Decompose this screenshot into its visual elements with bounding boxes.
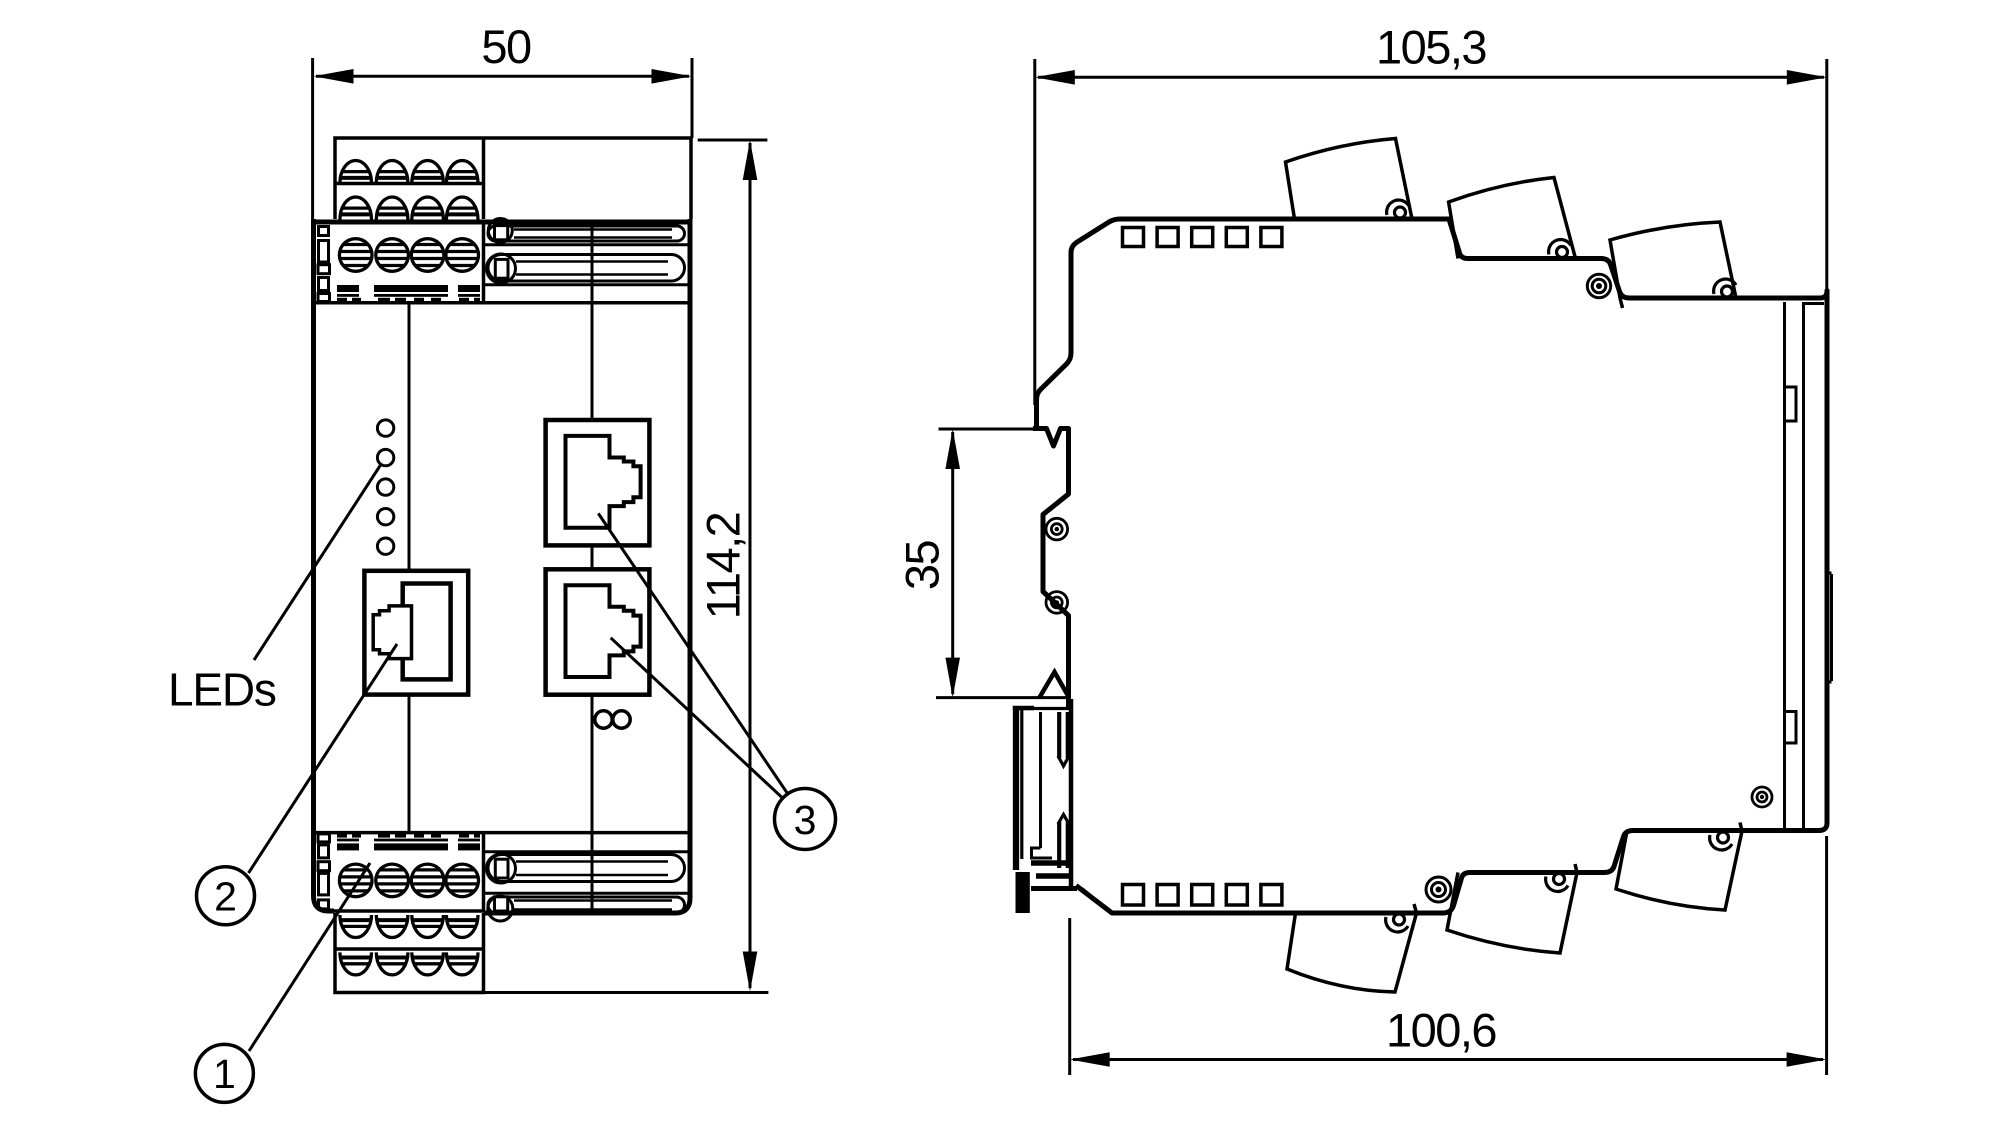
svg-text:50: 50 — [481, 20, 531, 73]
svg-text:35: 35 — [896, 541, 949, 591]
svg-text:114,2: 114,2 — [697, 513, 750, 620]
svg-text:3: 3 — [794, 797, 817, 843]
svg-text:LEDs: LEDs — [168, 664, 276, 716]
svg-text:1: 1 — [213, 1051, 236, 1097]
svg-text:100,6: 100,6 — [1386, 1004, 1496, 1057]
svg-text:2: 2 — [214, 874, 237, 920]
svg-text:105,3: 105,3 — [1376, 21, 1486, 74]
